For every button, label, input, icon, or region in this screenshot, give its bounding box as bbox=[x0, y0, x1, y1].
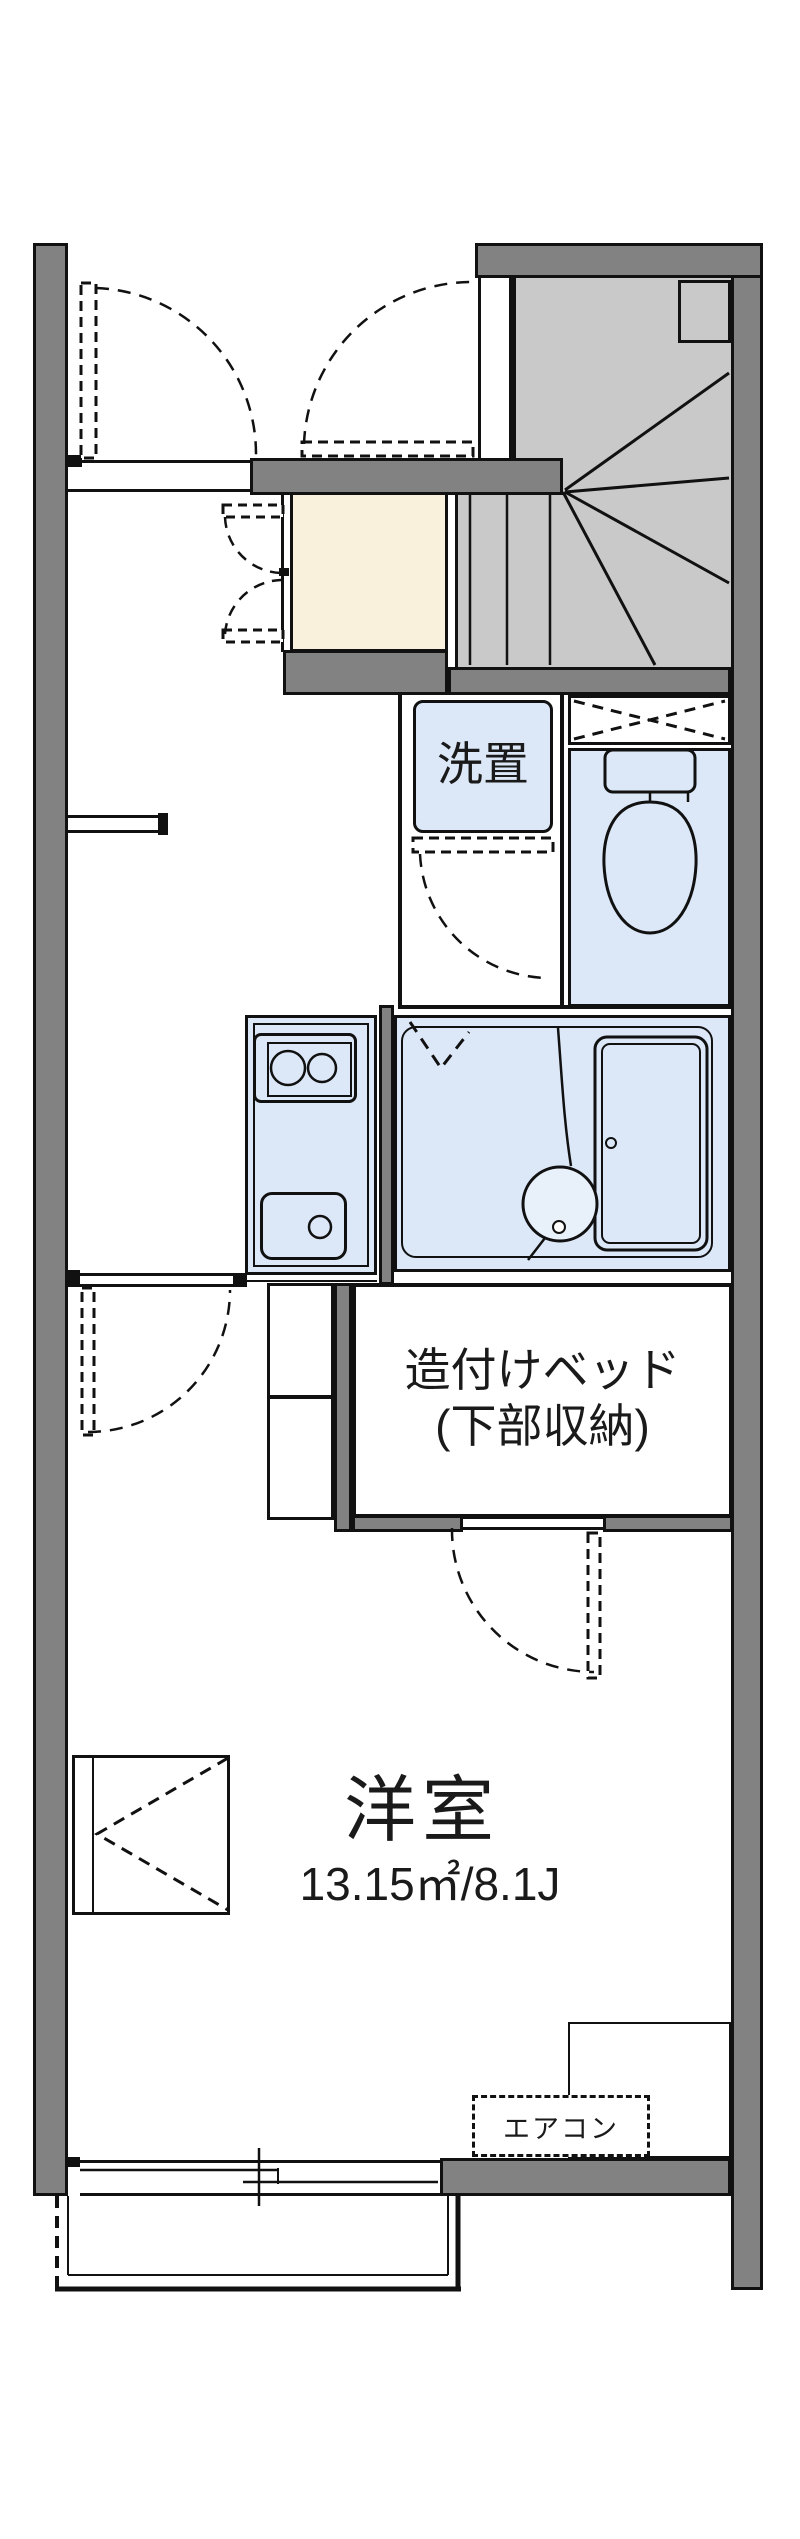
stair-winder-1 bbox=[565, 373, 729, 490]
hall-door-leaf-lower bbox=[223, 630, 283, 642]
upstairs-door-swing bbox=[304, 282, 472, 444]
room-label: 洋室 bbox=[252, 1772, 592, 1850]
hall-door-swing-upper bbox=[225, 517, 281, 573]
entrance-door-swing bbox=[96, 288, 256, 455]
laundry-label: 洗置 bbox=[413, 738, 553, 790]
bath-folding-door bbox=[410, 1022, 469, 1068]
sink-drain bbox=[309, 1216, 331, 1238]
stove-burner-left bbox=[271, 1051, 305, 1085]
bed-label: 造付けベッド (下部収納) bbox=[352, 1342, 733, 1454]
bathtub bbox=[595, 1037, 707, 1250]
room-door-leaf bbox=[588, 1533, 600, 1678]
upstairs-door-leaf bbox=[302, 442, 473, 456]
linework-group bbox=[55, 282, 729, 2290]
entrance-door-leaf bbox=[81, 283, 96, 458]
hall-door-swing-lower bbox=[225, 580, 281, 634]
washer-room-door-leaf bbox=[413, 838, 553, 852]
bed-label-line1: 造付けベッド bbox=[352, 1342, 733, 1398]
floor-plan: エアコン bbox=[0, 0, 800, 2539]
corridor-door-swing bbox=[88, 1290, 230, 1432]
plan-linework bbox=[0, 0, 800, 2539]
stair-winder-2 bbox=[565, 478, 729, 492]
bath-partition-curve bbox=[558, 1028, 571, 1166]
corridor-door-leaf bbox=[82, 1288, 94, 1435]
toilet-bowl bbox=[604, 802, 696, 933]
bed-label-line2: (下部収納) bbox=[352, 1398, 733, 1454]
closet-chevron bbox=[97, 1758, 228, 1910]
room-door-swing bbox=[452, 1528, 594, 1672]
toilet-tank bbox=[605, 750, 695, 792]
hall-door-leaf-upper bbox=[223, 505, 283, 517]
stove-burner-right bbox=[308, 1054, 336, 1082]
stair-winder-3 bbox=[565, 492, 729, 583]
room-area-label: 13.15㎡/8.1J bbox=[252, 1858, 608, 1910]
basin-drain bbox=[553, 1221, 565, 1233]
washer-room-door-swing bbox=[420, 854, 548, 978]
bathtub-handle bbox=[606, 1138, 616, 1148]
